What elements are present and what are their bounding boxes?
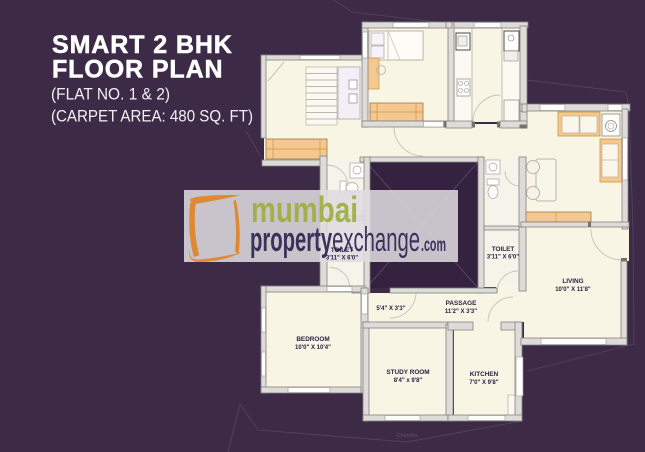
svg-text:7'0" X 9'8": 7'0" X 9'8" [469, 380, 498, 386]
svg-text:(CARPET AREA: 480 SQ. FT): (CARPET AREA: 480 SQ. FT) [51, 108, 253, 126]
svg-text:11'2" X 3'3": 11'2" X 3'3" [445, 309, 477, 315]
svg-text:TOILET: TOILET [331, 247, 354, 254]
svg-text:PASSAGE: PASSAGE [446, 300, 478, 307]
svg-text:3'11" X 6'0": 3'11" X 6'0" [326, 256, 358, 262]
svg-text:(FLAT NO. 1 & 2): (FLAT NO. 1 & 2) [51, 86, 170, 104]
svg-text:10'0" X 10'4": 10'0" X 10'4" [295, 345, 331, 351]
svg-text:8'4" x 9'8": 8'4" x 9'8" [394, 378, 423, 384]
svg-text:KITCHEN: KITCHEN [470, 371, 499, 378]
svg-text:STUDY ROOM: STUDY ROOM [386, 369, 429, 376]
svg-text:LIVING: LIVING [562, 278, 583, 285]
svg-text:3'11" X 6'0": 3'11" X 6'0" [487, 255, 519, 261]
svg-text:BEDROOM: BEDROOM [296, 336, 329, 343]
svg-text:.com: .com [421, 235, 446, 256]
svg-text:TOILET: TOILET [492, 246, 515, 253]
svg-text:5'4" X 3'3": 5'4" X 3'3" [376, 306, 405, 312]
svg-text:FLOOR PLAN: FLOOR PLAN [52, 56, 224, 84]
svg-text:10'0" X 11'8": 10'0" X 11'8" [555, 287, 591, 293]
svg-text:Chandra: Chandra [397, 433, 418, 439]
